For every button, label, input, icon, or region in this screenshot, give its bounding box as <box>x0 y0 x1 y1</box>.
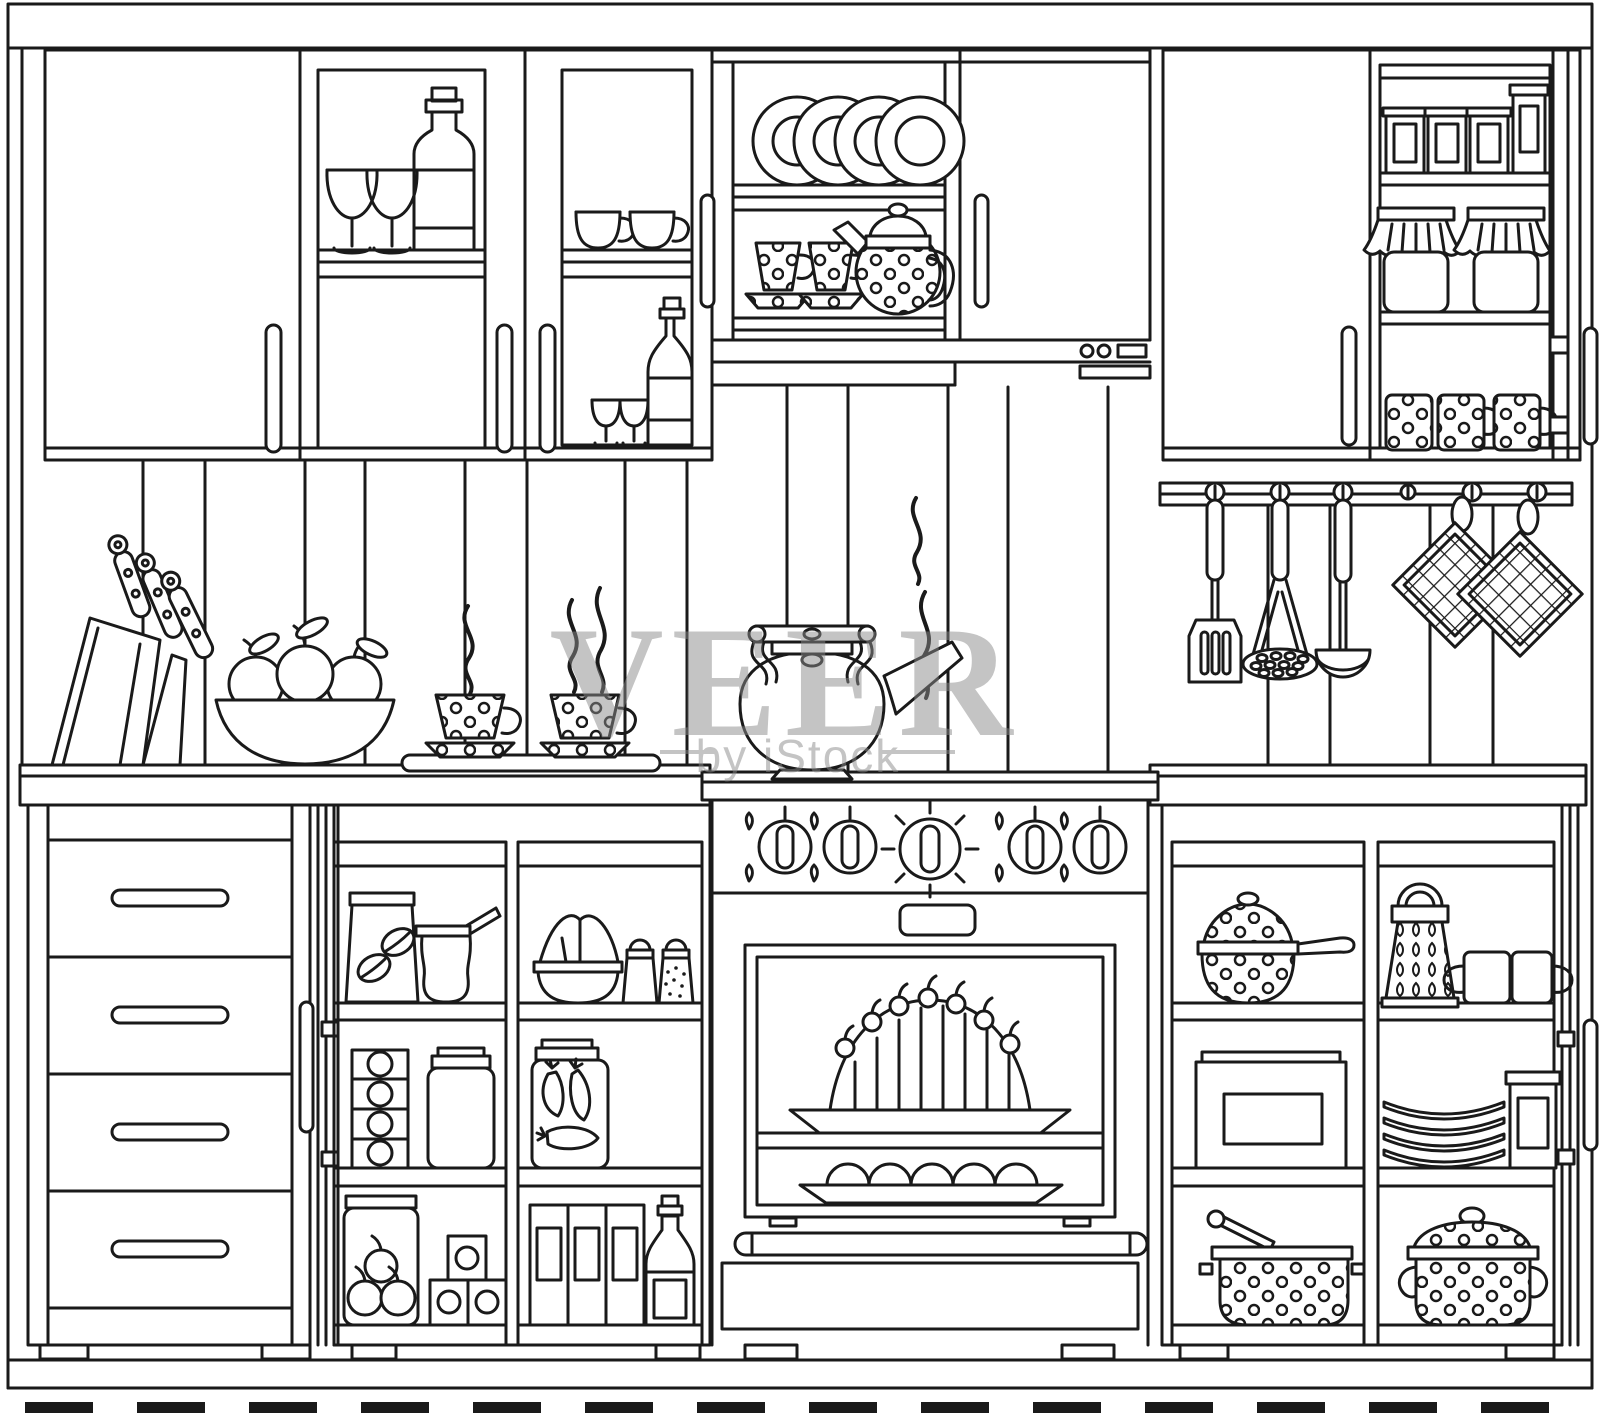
door-handle <box>540 325 555 452</box>
canister <box>1506 1072 1560 1168</box>
hinge <box>1550 337 1568 353</box>
watermark: VEER by iStock <box>550 595 1021 782</box>
cabinet-foot <box>1506 1345 1554 1359</box>
drawer-handle <box>112 890 228 906</box>
drawer-handle <box>112 1007 228 1023</box>
cabinet-foot <box>40 1345 88 1359</box>
door-handle <box>497 325 512 452</box>
watermark-subtitle: by iStock <box>696 730 901 782</box>
teapot-lid-knob <box>889 204 907 216</box>
pickled-eggplant-jar <box>532 1040 608 1168</box>
bread-box <box>1196 1052 1346 1168</box>
cabinet-foot <box>352 1345 396 1359</box>
cabinet-foot <box>1180 1345 1228 1359</box>
hinge <box>1550 417 1568 433</box>
coffee-bag <box>346 893 419 1002</box>
door-handle <box>300 1002 313 1132</box>
drawer-handle <box>112 1124 228 1140</box>
door-handle <box>975 195 988 307</box>
cereal-boxes <box>530 1205 644 1325</box>
door-handle <box>1584 328 1597 444</box>
kitchen-drawing: VEER by iStock <box>0 0 1600 1413</box>
cabinet-foot <box>745 1345 797 1359</box>
door-handle <box>1342 327 1356 445</box>
hinge <box>1558 1150 1574 1164</box>
hinge <box>1558 1032 1574 1046</box>
cabinet-foot <box>656 1345 700 1359</box>
apple-jar <box>344 1196 418 1325</box>
cabinet-foot <box>1062 1345 1114 1359</box>
oven-door-handle <box>735 1233 1147 1255</box>
oven-display <box>900 905 975 935</box>
polka-mugs <box>1386 395 1557 450</box>
spice-box-stack <box>352 1050 408 1168</box>
right-counter <box>1150 765 1586 805</box>
pepper-shaker <box>659 940 693 1003</box>
cake-platter <box>790 1110 1070 1135</box>
oven-rack <box>757 1133 1103 1148</box>
drawer-handle <box>112 1241 228 1257</box>
cabinet-foot <box>262 1345 310 1359</box>
hinge <box>322 1152 338 1166</box>
plate-row <box>753 97 964 185</box>
illustration-kitchen-line-art: VEER by iStock <box>0 0 1600 1413</box>
storage-jar <box>428 1048 494 1168</box>
door-handle <box>266 325 281 452</box>
door-handle <box>1584 1020 1597 1150</box>
door-handle <box>701 195 714 307</box>
salt-shaker <box>623 940 657 1003</box>
hinge <box>322 1022 338 1036</box>
bun-tray <box>800 1164 1062 1203</box>
